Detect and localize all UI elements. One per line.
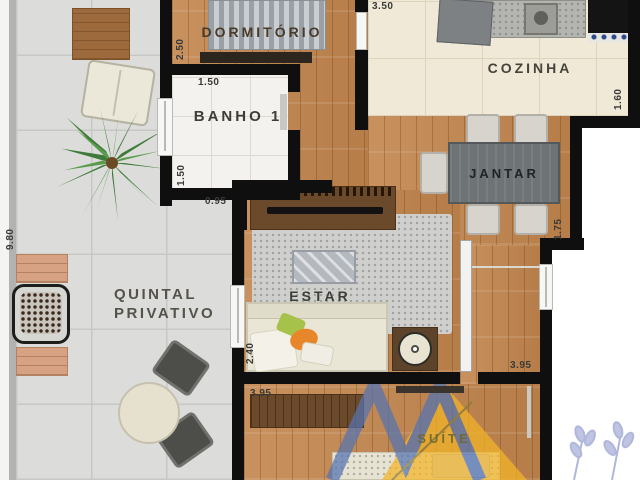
palm-tree — [52, 102, 172, 224]
wall-suite-left — [232, 384, 244, 480]
dormitorio-dresser — [200, 52, 312, 63]
stove-knobs — [588, 33, 630, 42]
sink-drain — [534, 11, 548, 25]
wall-estar-left-b — [232, 348, 244, 372]
dim-banho-left: 1.50 — [176, 165, 187, 186]
wall-corridor-right-a — [540, 238, 552, 264]
wall-corridor-right-b — [540, 310, 552, 480]
room-label-banho: BANHO 1 — [188, 108, 288, 125]
dining-chair-left — [420, 152, 448, 194]
bbq-grill — [12, 284, 70, 344]
window-corridor — [539, 264, 553, 310]
dim-cozinha-right: 1.60 — [613, 89, 624, 110]
dim-cozinha-top: 3.50 — [372, 1, 393, 12]
window-dorm-coz — [356, 12, 367, 50]
room-label-cozinha: COZINHA — [470, 60, 590, 76]
window-dormitorio-left — [157, 98, 173, 156]
bbq-bench-bottom — [16, 347, 68, 376]
wall-dormitorio-left — [160, 0, 172, 98]
bbq-bench-top — [16, 254, 68, 283]
patio-wood-table — [72, 8, 130, 60]
wall-jantar-right — [570, 116, 582, 245]
door-swing-line — [472, 266, 540, 268]
wall-estar-left-a — [232, 193, 244, 285]
sofa-back — [248, 304, 386, 319]
wall-estar-suite-divider — [232, 372, 460, 384]
wall-cozinha-right — [628, 0, 640, 128]
coffee-table — [292, 250, 356, 284]
room-label-dormitorio: DORMITÓRIO — [192, 24, 332, 40]
floor-plan: JANTAR — [0, 0, 640, 480]
dining-chair-bottom-left — [466, 204, 500, 235]
room-label-quintal-line2: PRIVATIVO — [114, 305, 254, 322]
patio-round-table — [118, 382, 180, 444]
side-table-plate — [398, 332, 432, 366]
kitchen-island-board — [437, 0, 494, 46]
wall-dorm-coz — [355, 50, 368, 130]
bbq-charcoal — [20, 292, 62, 334]
tv — [267, 207, 383, 214]
wall-dorm-coz-top — [355, 0, 368, 12]
dim-corridor-right: 3.95 — [510, 360, 531, 371]
wall-banho-top — [172, 64, 300, 75]
watermark-flowers — [552, 418, 640, 480]
partition-estar-corridor — [460, 240, 472, 372]
dim-estar-left: 2.40 — [245, 343, 256, 364]
room-label-jantar: JANTAR — [469, 166, 539, 181]
dining-table: JANTAR — [448, 142, 560, 204]
room-label-suite: SUÍTE — [404, 431, 484, 446]
dining-chair-top-left — [466, 114, 500, 145]
kitchen-sink — [524, 3, 558, 35]
dining-chair-bottom-right — [514, 204, 548, 235]
dim-banho-top: 1.50 — [198, 77, 219, 88]
suite-door-leaf — [396, 386, 464, 393]
wall-estar-top — [232, 180, 332, 193]
dining-chair-top-right — [514, 114, 548, 145]
dim-suite-top: 3.95 — [250, 388, 271, 399]
room-label-estar: ESTAR — [280, 288, 360, 304]
dim-quintal-left: 9.80 — [5, 229, 16, 250]
side-table — [392, 327, 438, 371]
side-table-dot — [411, 345, 419, 353]
corridor-door-leaf — [527, 386, 531, 438]
wall-banho-right-upper — [288, 64, 300, 92]
room-label-quintal-line1: QUINTAL — [114, 286, 244, 303]
wall-divider-right — [478, 372, 552, 384]
dim-banho-door: 0.95 — [205, 196, 226, 207]
dim-dormitorio-left: 2.50 — [175, 39, 186, 60]
dim-jantar-right: 1.75 — [553, 219, 564, 240]
banho-floor — [172, 75, 288, 195]
stove-cooktop — [588, 0, 630, 33]
